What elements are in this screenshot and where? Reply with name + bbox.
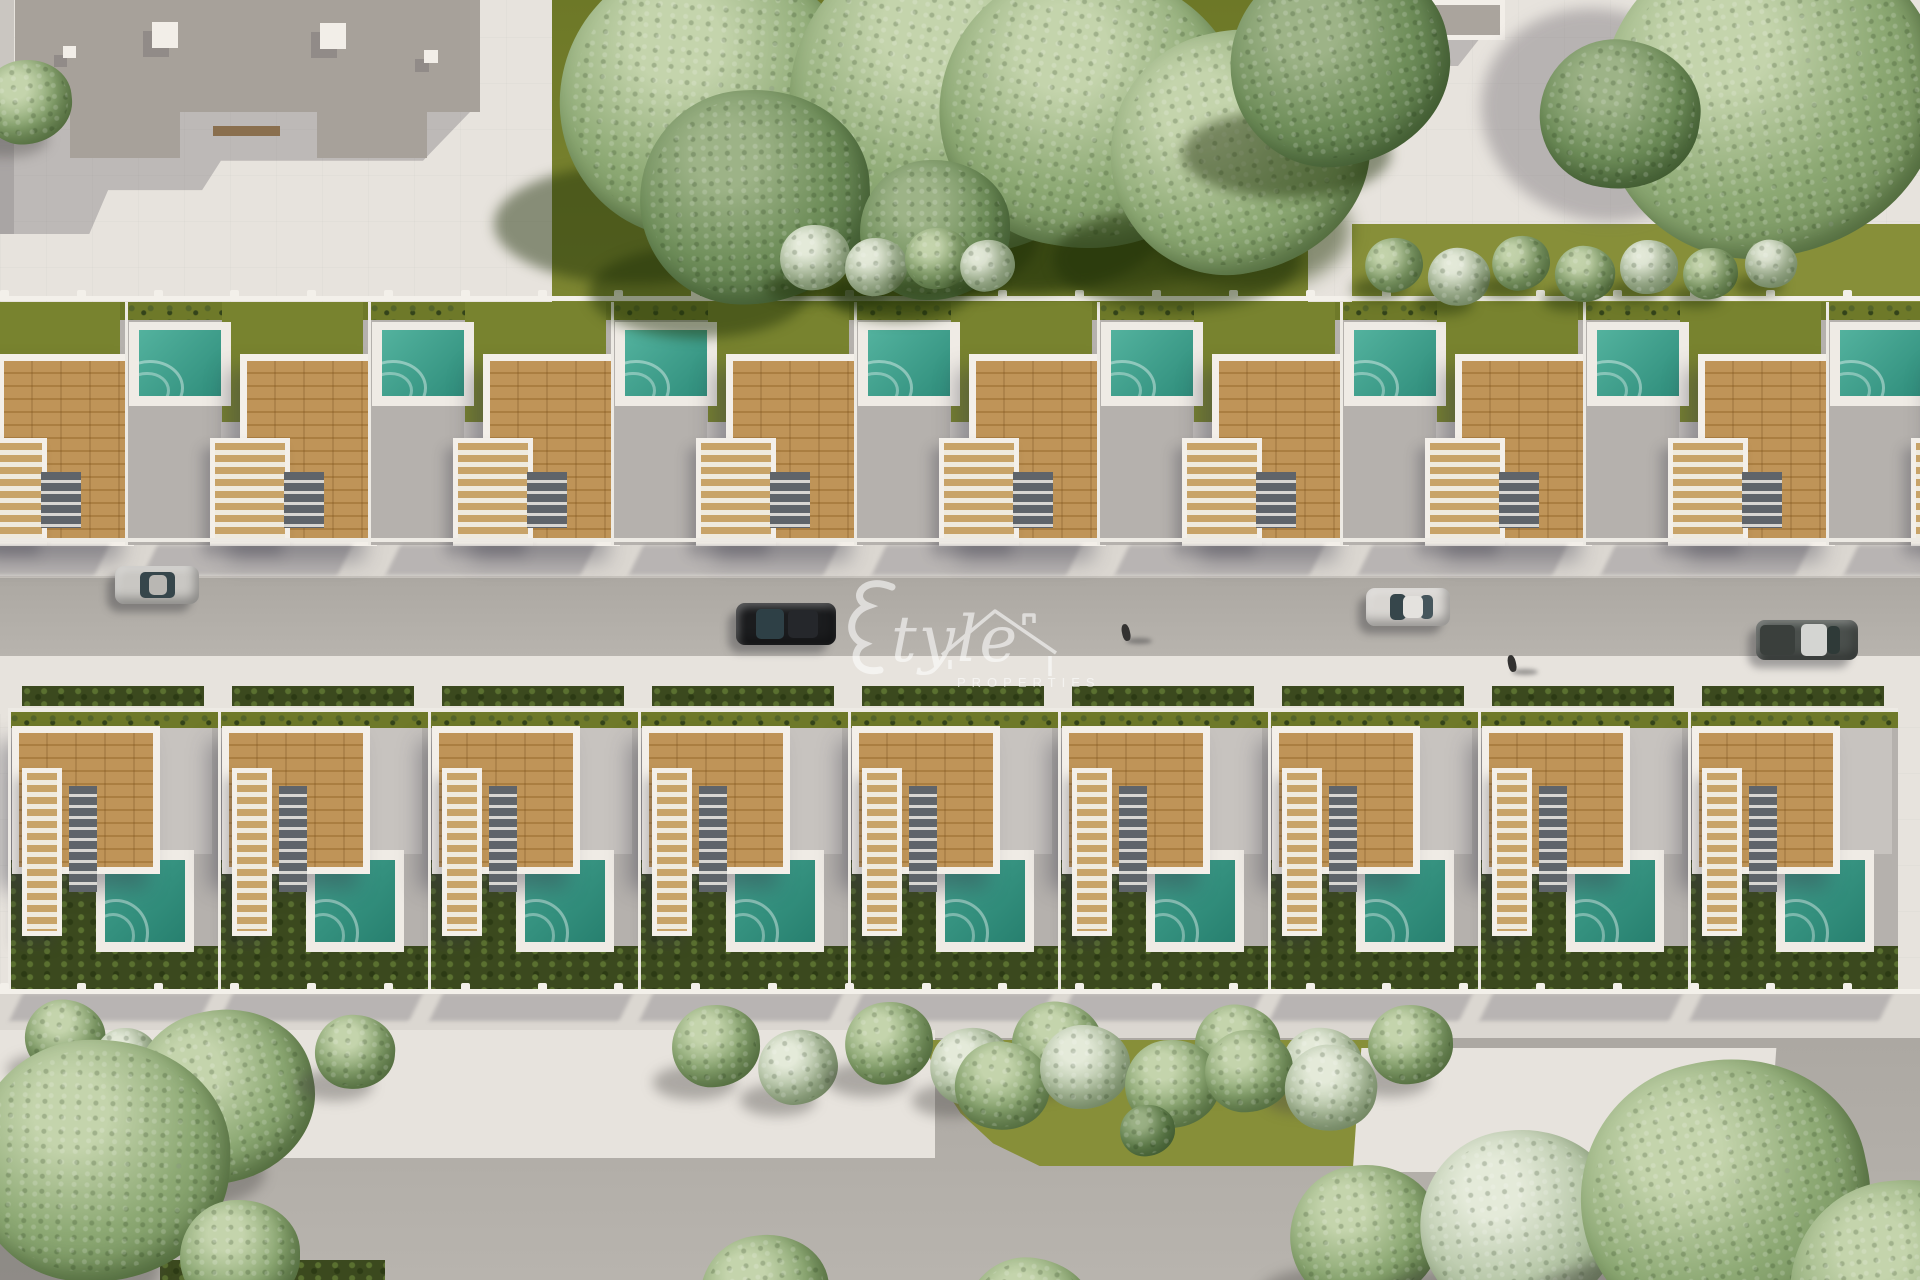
front-fence xyxy=(1583,538,1826,542)
pickup-truck-detail xyxy=(1760,625,1795,655)
lower-boundary-fence xyxy=(0,989,1920,994)
fence-post xyxy=(77,290,86,300)
villa-shadow xyxy=(429,993,633,1021)
fence-post xyxy=(461,983,470,993)
entrance-pergola xyxy=(1911,438,1920,546)
entrance-pergola xyxy=(1282,768,1322,936)
fence-post xyxy=(307,290,316,300)
front-fence xyxy=(854,538,1097,542)
front-fence xyxy=(368,538,611,542)
street-planter xyxy=(1072,686,1254,706)
lot-divider xyxy=(1097,302,1100,545)
front-fence xyxy=(125,538,368,542)
fence-post xyxy=(384,983,393,993)
fence-post xyxy=(154,290,163,300)
villa-shadow xyxy=(1689,993,1893,1021)
roof-vent-box xyxy=(320,23,346,49)
entrance-stairs xyxy=(1742,472,1782,528)
entrance-stairs xyxy=(284,472,324,528)
street-planter xyxy=(1282,686,1464,706)
fence-post xyxy=(1075,983,1084,993)
entrance-pergola xyxy=(862,768,902,936)
fence-post xyxy=(998,983,1007,993)
villa-shadow xyxy=(1601,545,1811,575)
fence-post xyxy=(1536,983,1545,993)
entrance-stairs xyxy=(1499,472,1539,528)
building-roof xyxy=(15,0,480,112)
villa-shadow xyxy=(1479,993,1683,1021)
entrance-stairs xyxy=(1329,786,1357,892)
fence-post xyxy=(538,290,547,300)
roof-beam xyxy=(213,126,280,136)
entrance-pergola xyxy=(939,438,1019,546)
pool xyxy=(1111,330,1193,396)
fence-post xyxy=(307,983,316,993)
black-suv xyxy=(736,603,836,645)
street-planter xyxy=(232,686,414,706)
lot-divider xyxy=(1688,712,1691,993)
front-fence xyxy=(1097,538,1340,542)
back-garden xyxy=(428,946,638,993)
fence-post xyxy=(1152,983,1161,993)
fence-post xyxy=(1766,983,1775,993)
entrance-stairs xyxy=(1539,786,1567,892)
pool xyxy=(1840,330,1920,396)
villa-shadow xyxy=(629,545,839,575)
lot-divider xyxy=(1058,712,1061,993)
entrance-stairs xyxy=(1119,786,1147,892)
lot-divider xyxy=(8,712,11,993)
lot-divider xyxy=(854,302,857,545)
lot-divider xyxy=(428,712,431,993)
back-garden xyxy=(8,946,218,993)
entrance-pergola xyxy=(22,768,62,936)
villa-shadow xyxy=(0,545,109,575)
street-planter xyxy=(862,686,1044,706)
pool xyxy=(382,330,464,396)
fence-post xyxy=(1382,983,1391,993)
villa-shadow xyxy=(1844,545,1920,575)
fence-post xyxy=(1613,983,1622,993)
entrance-pergola xyxy=(1072,768,1112,936)
white-car-detail xyxy=(1403,596,1423,617)
street-planter xyxy=(442,686,624,706)
fence-post xyxy=(768,983,777,993)
fence-post xyxy=(922,983,931,993)
entrance-pergola xyxy=(210,438,290,546)
entrance-stairs xyxy=(770,472,810,528)
entrance-pergola xyxy=(1702,768,1742,936)
fence-post xyxy=(461,290,470,300)
entrance-stairs xyxy=(69,786,97,892)
front-fence xyxy=(1340,538,1583,542)
street-planter xyxy=(652,686,834,706)
aerial-development-render: tyle PROPERTIES xyxy=(0,0,1920,1280)
entrance-stairs xyxy=(1013,472,1053,528)
fence-post xyxy=(0,290,9,300)
fence-post xyxy=(691,983,700,993)
entrance-pergola xyxy=(1492,768,1532,936)
pool xyxy=(1597,330,1679,396)
back-garden xyxy=(638,946,848,993)
roof-vent-box xyxy=(152,22,178,48)
villa-shadow xyxy=(386,545,596,575)
fence-post xyxy=(1229,983,1238,993)
entrance-pergola xyxy=(232,768,272,936)
black-suv-detail xyxy=(756,609,784,639)
entrance-pergola xyxy=(442,768,482,936)
fence-post xyxy=(1459,983,1468,993)
entrance-stairs xyxy=(909,786,937,892)
back-garden xyxy=(218,946,428,993)
entrance-pergola xyxy=(652,768,692,936)
roof-vent-box xyxy=(63,46,76,58)
building-roof-wing xyxy=(70,112,180,158)
entrance-stairs xyxy=(41,472,81,528)
pool xyxy=(1354,330,1436,396)
villa-shadow xyxy=(1115,545,1325,575)
entrance-pergola xyxy=(0,438,47,546)
entrance-stairs xyxy=(699,786,727,892)
villa-shadow xyxy=(1358,545,1568,575)
fence-post xyxy=(77,983,86,993)
fence-post xyxy=(384,290,393,300)
entrance-stairs xyxy=(527,472,567,528)
fence-post xyxy=(1843,290,1852,300)
entrance-pergola xyxy=(1182,438,1262,546)
building-roof-wing xyxy=(317,112,427,158)
entrance-stairs xyxy=(279,786,307,892)
lot-divider xyxy=(1268,712,1271,993)
fence-post xyxy=(154,983,163,993)
entrance-stairs xyxy=(1256,472,1296,528)
lot-divider xyxy=(218,712,221,993)
entrance-pergola xyxy=(1425,438,1505,546)
lot-divider xyxy=(1826,302,1829,545)
silver-car-detail xyxy=(149,575,167,595)
entrance-pergola xyxy=(1668,438,1748,546)
fence-post xyxy=(0,983,9,993)
pool xyxy=(868,330,950,396)
back-garden xyxy=(1688,946,1898,993)
pickup-truck-detail xyxy=(1827,626,1839,655)
lot-divider xyxy=(125,302,128,545)
lot-divider xyxy=(611,302,614,545)
front-fence xyxy=(1826,538,1920,542)
lot-divider xyxy=(368,302,371,545)
back-hedge xyxy=(1826,302,1920,320)
fence-post xyxy=(1690,983,1699,993)
entrance-pergola xyxy=(696,438,776,546)
roof-vent-box xyxy=(424,50,438,63)
lot-divider xyxy=(1478,712,1481,993)
villa-shadow xyxy=(872,545,1082,575)
fence-post xyxy=(614,983,623,993)
entrance-stairs xyxy=(489,786,517,892)
black-suv-detail xyxy=(788,610,818,639)
lot-divider xyxy=(848,712,851,993)
fence-post xyxy=(230,290,239,300)
fence-post xyxy=(1306,983,1315,993)
back-garden xyxy=(848,946,1058,993)
street-planter xyxy=(1702,686,1884,706)
fence-post xyxy=(538,983,547,993)
entrance-pergola xyxy=(453,438,533,546)
fence-post xyxy=(845,983,854,993)
lot-divider xyxy=(1583,302,1586,545)
fence-post xyxy=(230,983,239,993)
front-fence xyxy=(611,538,854,542)
lot-divider xyxy=(638,712,641,993)
pool xyxy=(625,330,707,396)
pool xyxy=(139,330,221,396)
fence-post xyxy=(1843,983,1852,993)
back-garden xyxy=(1478,946,1688,993)
front-fence xyxy=(0,538,125,542)
entrance-stairs xyxy=(1749,786,1777,892)
pickup-truck-detail xyxy=(1801,624,1828,656)
back-garden xyxy=(1268,946,1478,993)
street-planter xyxy=(1492,686,1674,706)
street-planter xyxy=(22,686,204,706)
street xyxy=(0,578,1920,658)
lot-divider xyxy=(1340,302,1343,545)
fence-post xyxy=(1306,290,1315,300)
bush xyxy=(1620,240,1678,294)
